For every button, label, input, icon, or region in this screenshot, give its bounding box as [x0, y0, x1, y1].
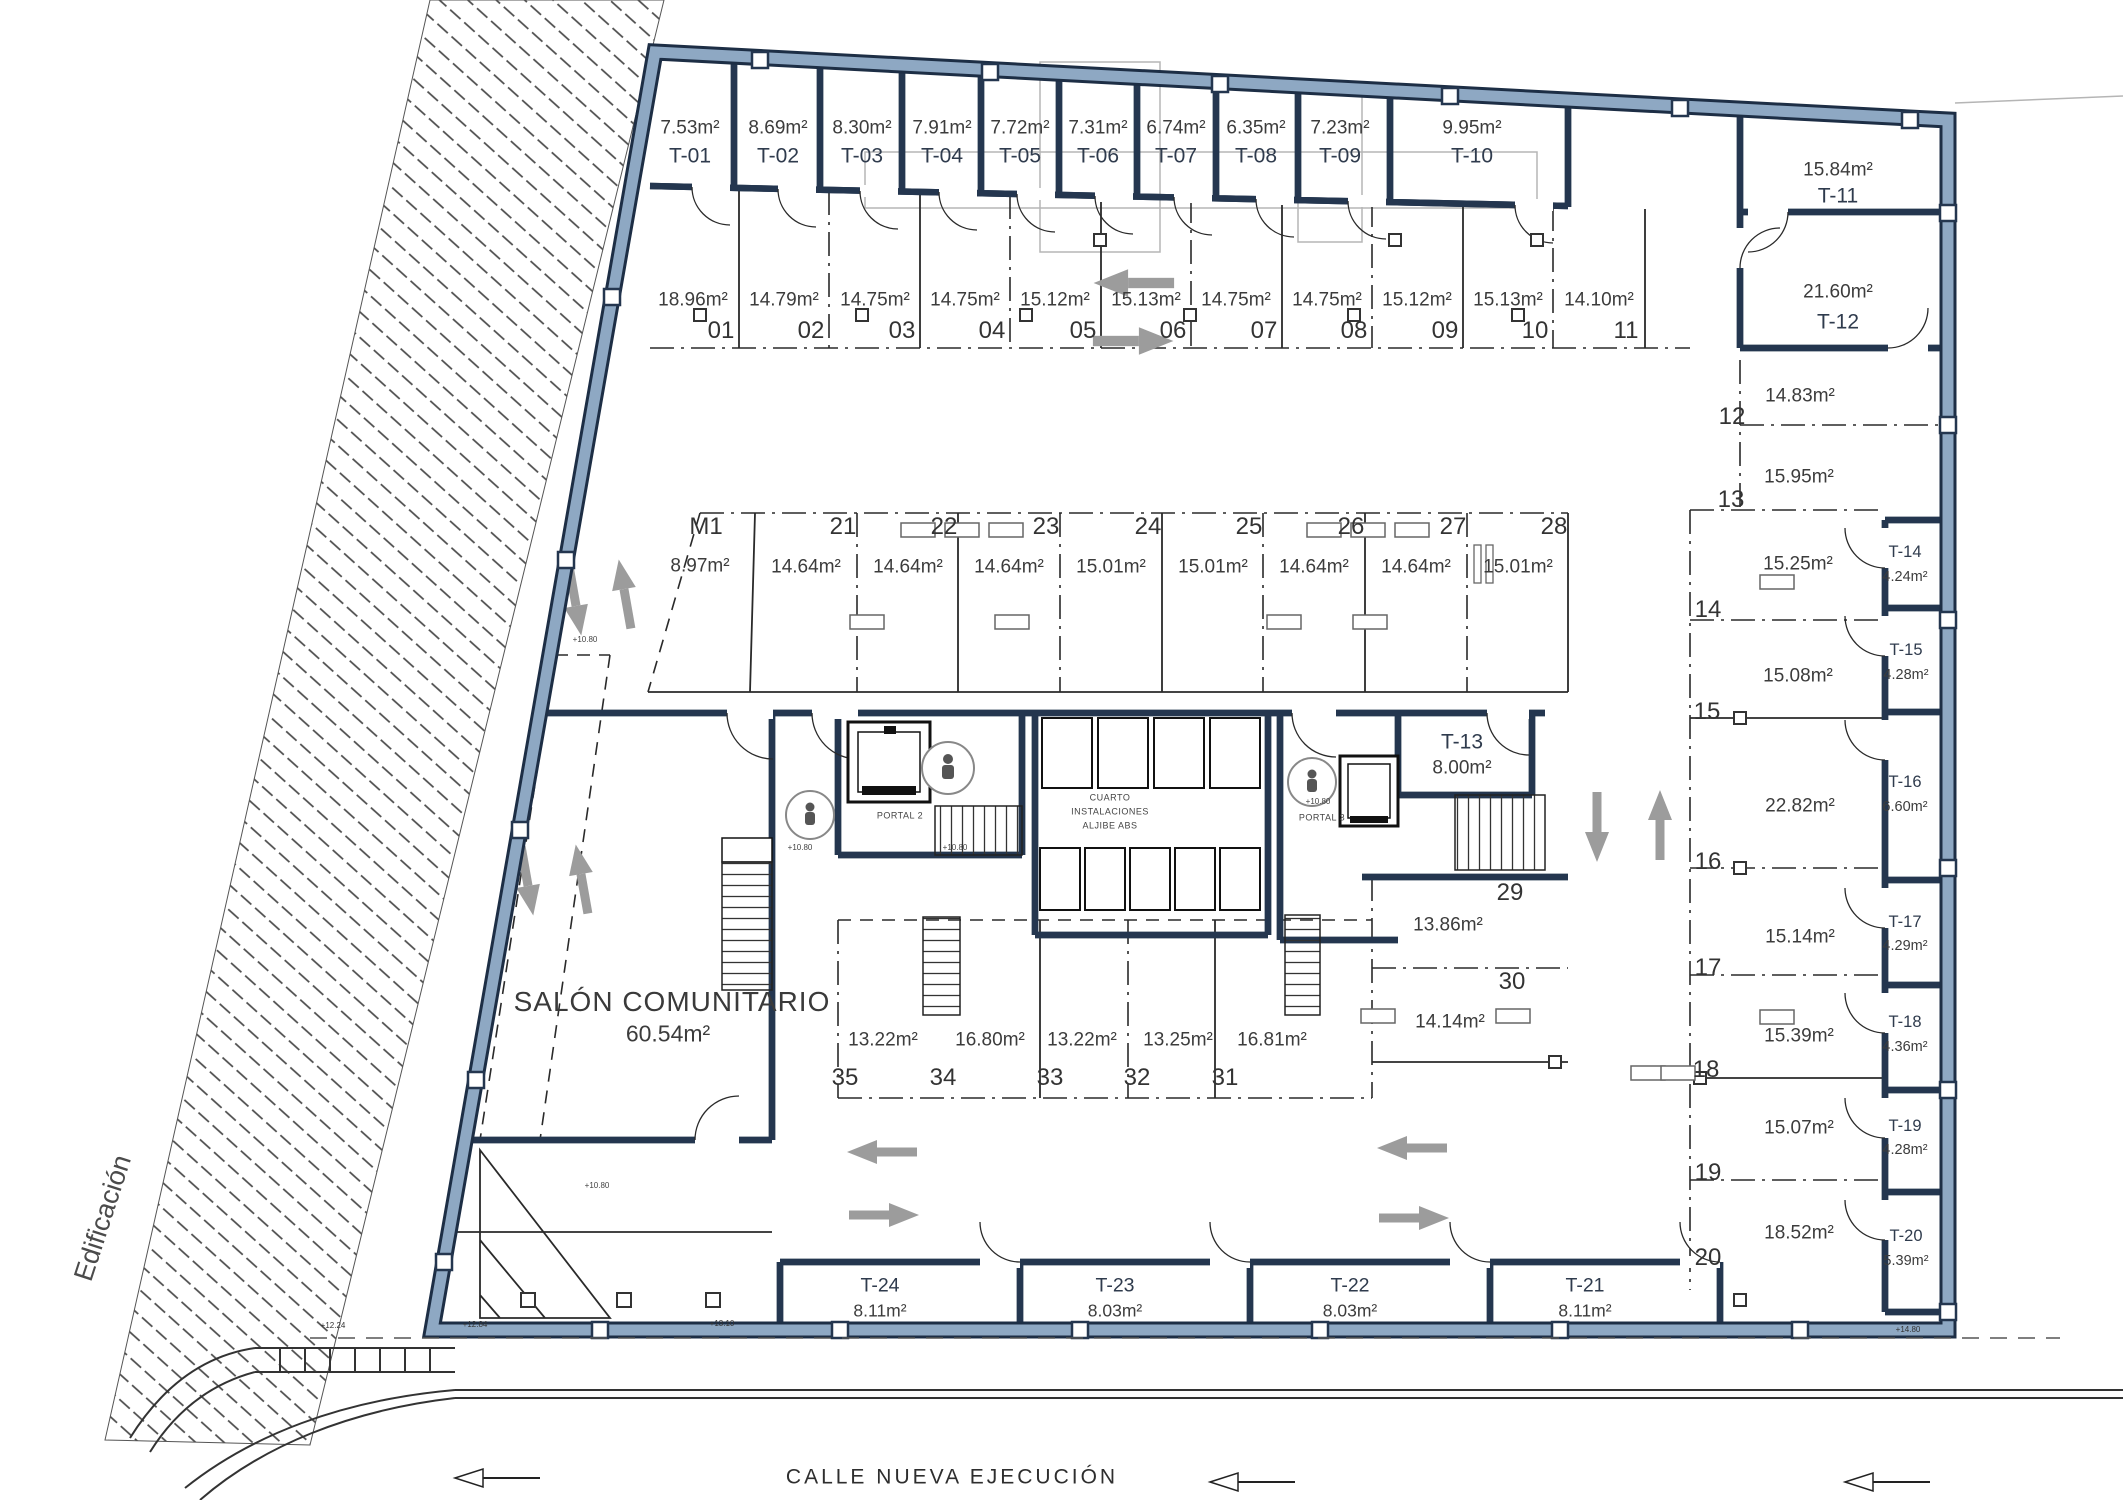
floor-plan-drawing	[0, 0, 2123, 1500]
floor-plan-page: CALLE NUEVA EJECUCIÓN Edificación T-017.…	[0, 0, 2123, 1500]
elevator-3	[1340, 756, 1398, 826]
elevator-2	[848, 722, 930, 802]
